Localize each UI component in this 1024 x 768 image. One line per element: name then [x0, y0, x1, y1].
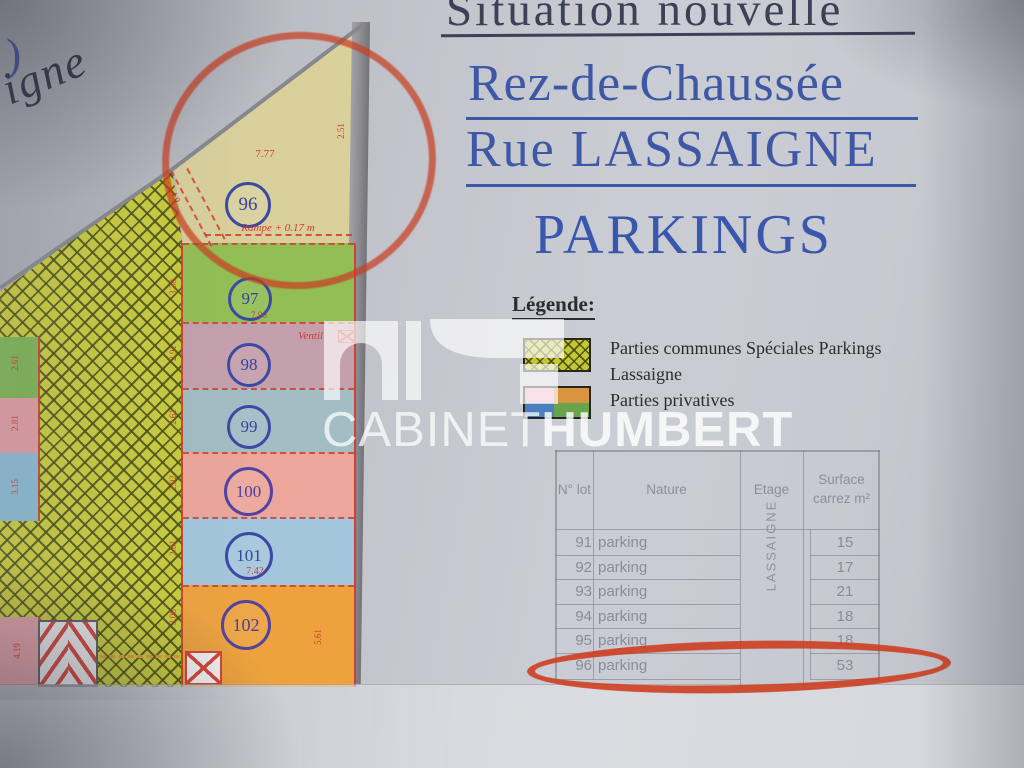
row-92-nature: parking [598, 559, 647, 576]
col-header-nature: Nature [593, 482, 740, 497]
lot-98-left-dim: 2.91 [168, 338, 178, 368]
col-header-lot: N° lot [556, 482, 593, 497]
lot-98-number: 98 [241, 355, 258, 375]
row-92-lot: 92 [558, 559, 592, 576]
lot-100-number: 100 [236, 482, 262, 502]
lot-98-vent-label: Ventil [298, 330, 323, 342]
lot-101-left-dim: 2.61 [168, 533, 178, 563]
lot-99-circle: 99 [227, 405, 271, 449]
table-line [810, 579, 880, 580]
table-line [810, 628, 880, 629]
row-91-surface: 15 [812, 534, 878, 551]
table-line [555, 628, 741, 629]
row-94-lot: 94 [558, 608, 592, 625]
ramp-chevron-icon [38, 620, 98, 687]
lot-102-circle: 102 [221, 600, 271, 650]
title-parkings: PARKINGS [534, 203, 833, 267]
document-photo: 96 97 98 99 100 101 102 7.77 2.51 Rampe … [0, 0, 1024, 768]
lot-97-left-dim: 3.30 [168, 272, 178, 302]
lot-99-number: 99 [241, 417, 258, 437]
table-line [810, 555, 880, 556]
table-line [555, 579, 741, 580]
title-top-clip: Situation nouvelle [438, 0, 920, 36]
lot-101-number: 101 [236, 546, 262, 566]
lot-99-left-dim: 2.61 [168, 402, 178, 432]
etage-vertical-label: LASSAIGNE [764, 471, 779, 621]
legend-heading: Légende: [512, 292, 595, 320]
lot-102-number: 102 [233, 615, 260, 636]
row-91-lot: 91 [558, 534, 592, 551]
lot-100-circle: 100 [224, 467, 273, 516]
table-line [555, 529, 880, 530]
table-line [555, 604, 741, 605]
row-93-surface: 21 [812, 583, 878, 600]
table-line [810, 604, 880, 605]
edge-parking-strips [0, 337, 40, 521]
legend-item-1-line-2: Lassaigne [610, 364, 682, 385]
lot-98-circle: 98 [227, 343, 271, 387]
edge-green-dim: 2.61 [10, 348, 20, 378]
row-92-surface: 17 [812, 559, 878, 576]
watermark-cabinet: CABINET [322, 403, 541, 457]
legend-item-1-line-1: Parties communes Spéciales Parkings [610, 338, 940, 359]
row-93-nature: parking [598, 583, 647, 600]
crossed-box-icon [185, 651, 222, 685]
watermark-humbert: HUMBERT [541, 403, 793, 457]
lot-102-left-dim: 3.06 [168, 602, 178, 632]
watermark-text: CABINETHUMBERT [322, 402, 793, 458]
paper-bottom-edge [0, 684, 1024, 768]
title-situation: Situation nouvelle [446, 0, 843, 36]
lot-97-number: 97 [242, 289, 259, 309]
lot-100-left-dim: 2.92 [168, 468, 178, 498]
lot-102-right-dim: 5.61 [313, 622, 323, 652]
lot-97-bottom-dim: 7.90 [244, 310, 274, 320]
edge-blue-dim: 3.15 [10, 472, 20, 502]
table-line [555, 555, 741, 556]
col-header-surface-2: carrez m² [803, 491, 880, 506]
title-underline-3 [466, 184, 916, 187]
row-93-lot: 93 [558, 583, 592, 600]
col-header-surface-1: Surface [803, 472, 880, 487]
lot-101-bottom-dim: 7.42 [240, 566, 270, 577]
row-91-nature: parking [598, 534, 647, 551]
row-95-lot: 95 [558, 632, 592, 649]
title-rez-de-chaussee: Rez-de-Chaussée [468, 54, 844, 113]
title-rue-lassaigne: Rue LASSAIGNE [466, 120, 878, 179]
edge-pink-dim: 2.81 [10, 408, 20, 438]
row-94-surface: 18 [812, 608, 878, 625]
cabinet-humbert-logo-icon [324, 318, 564, 408]
orange-dashed-line [100, 655, 180, 658]
row-94-nature: parking [598, 608, 647, 625]
edge-pink-bottom-dim: 4.19 [12, 636, 22, 666]
